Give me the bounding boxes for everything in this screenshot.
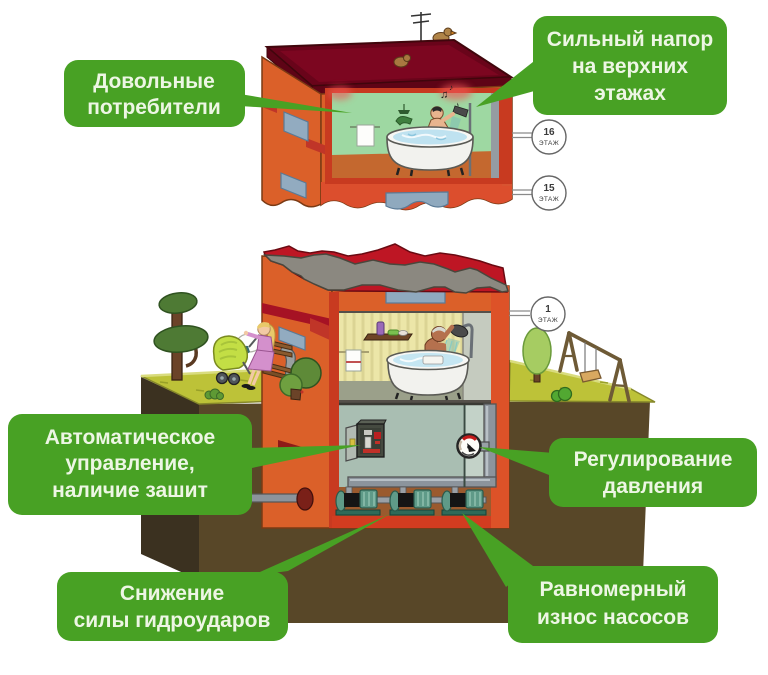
svg-text:1: 1 xyxy=(545,304,551,315)
svg-text:♪: ♪ xyxy=(449,83,453,92)
svg-text:этажах: этажах xyxy=(594,82,666,105)
svg-text:износ насосов: износ насосов xyxy=(537,606,689,629)
svg-text:Регулирование: Регулирование xyxy=(574,448,733,471)
svg-text:наличие зашит: наличие зашит xyxy=(52,479,208,502)
svg-text:Автоматическое: Автоматическое xyxy=(45,426,216,449)
svg-text:Равномерный: Равномерный xyxy=(539,578,686,601)
svg-text:16: 16 xyxy=(543,127,555,138)
svg-text:на верхних: на верхних xyxy=(572,55,688,78)
svg-text:управление,: управление, xyxy=(65,452,194,475)
svg-text:Сильный напор: Сильный напор xyxy=(547,28,713,51)
svg-text:потребители: потребители xyxy=(87,96,221,119)
svg-text:давления: давления xyxy=(603,475,703,498)
svg-text:ЭТАЖ: ЭТАЖ xyxy=(539,196,559,203)
svg-text:силы гидроударов: силы гидроударов xyxy=(74,609,271,632)
svg-text:Снижение: Снижение xyxy=(120,582,224,605)
svg-text:15: 15 xyxy=(543,183,555,194)
svg-text:Довольные: Довольные xyxy=(93,70,215,93)
svg-text:ЭТАЖ: ЭТАЖ xyxy=(539,140,559,147)
svg-text:ЭТАЖ: ЭТАЖ xyxy=(538,317,558,324)
svg-text:♫: ♫ xyxy=(440,89,448,101)
